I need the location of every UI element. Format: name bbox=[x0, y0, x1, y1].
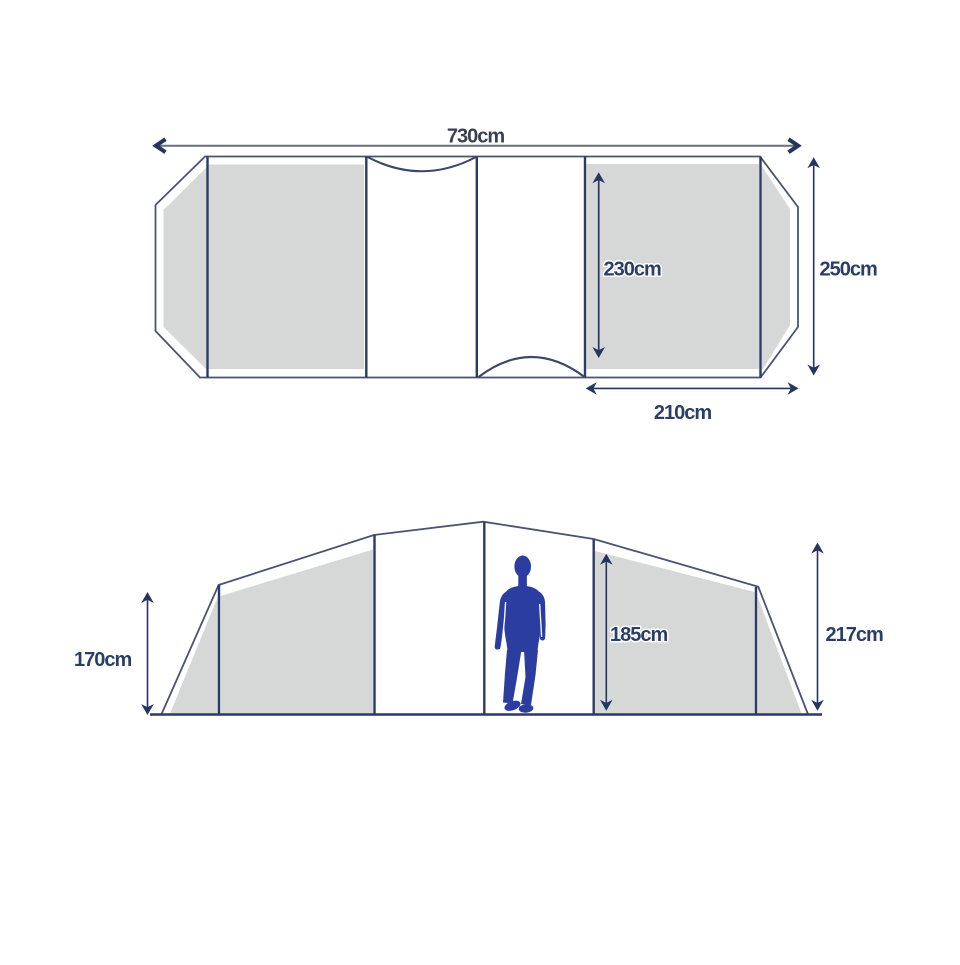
svg-text:170cm: 170cm bbox=[74, 649, 131, 671]
svg-text:217cm: 217cm bbox=[826, 624, 883, 646]
svg-text:730cm: 730cm bbox=[447, 125, 504, 147]
svg-text:230cm: 230cm bbox=[604, 259, 661, 281]
svg-text:210cm: 210cm bbox=[654, 402, 711, 424]
svg-text:250cm: 250cm bbox=[820, 259, 877, 281]
svg-text:185cm: 185cm bbox=[610, 624, 667, 646]
